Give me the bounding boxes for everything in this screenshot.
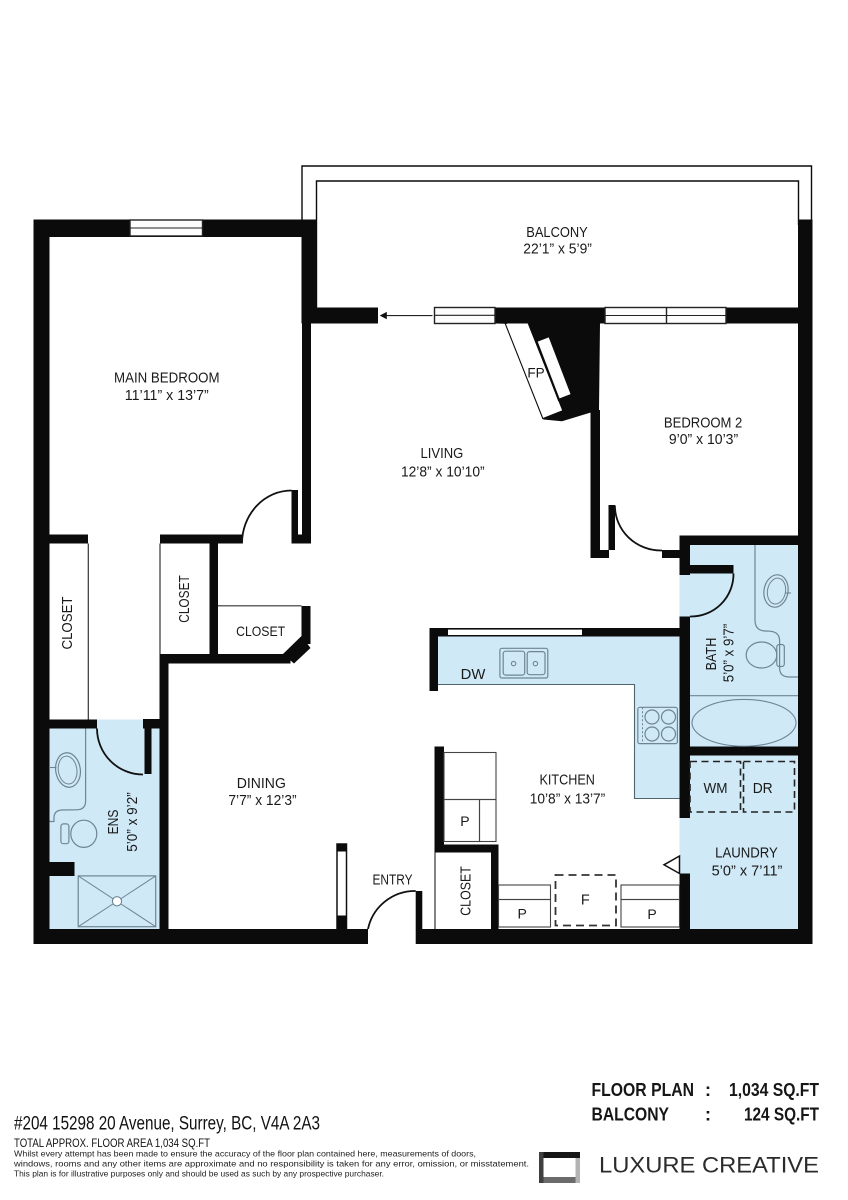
svg-text:7’7” x 12’3”: 7’7” x 12’3” [228,792,296,809]
svg-text:CLOSET: CLOSET [236,623,285,639]
svg-text:P: P [518,906,527,922]
svg-text:DW: DW [461,667,486,683]
svg-text:DR: DR [753,781,773,797]
svg-text:BALCONY: BALCONY [526,224,588,241]
svg-text:CLOSET: CLOSET [459,866,475,916]
svg-text:LAUNDRY: LAUNDRY [715,844,778,861]
svg-text:windows, rooms and any other i: windows, rooms and any other items are a… [13,1159,529,1169]
svg-text:ENTRY: ENTRY [373,872,413,889]
svg-text:MAIN BEDROOM: MAIN BEDROOM [114,370,220,387]
svg-text:WM: WM [704,781,728,797]
svg-text:LUXURE CREATIVE: LUXURE CREATIVE [599,1153,819,1178]
svg-text:LIVING: LIVING [421,445,464,462]
svg-text:P: P [647,906,656,922]
svg-text:5’0” x 7’11”: 5’0” x 7’11” [712,863,783,880]
svg-text:BEDROOM 2: BEDROOM 2 [664,414,742,431]
svg-text:KITCHEN: KITCHEN [540,772,595,789]
svg-text:12’8” x 10’10”: 12’8” x 10’10” [401,463,485,480]
svg-text:This plan is for illustrative: This plan is for illustrative purposes o… [14,1169,384,1179]
svg-text:BALCONY: BALCONY [592,1104,670,1125]
svg-text:CLOSET: CLOSET [177,575,193,623]
svg-text:124 SQ.FT: 124 SQ.FT [744,1104,820,1125]
svg-text:9’0” x 10’3”: 9’0” x 10’3” [669,431,738,448]
svg-text::: : [705,1104,711,1125]
svg-text:10’8” x 13’7”: 10’8” x 13’7” [530,791,606,808]
svg-text:BATH: BATH [704,638,720,671]
svg-text:5’0” x 9’7”: 5’0” x 9’7” [722,624,738,683]
svg-text:P: P [460,813,469,829]
svg-text::: : [705,1079,711,1100]
svg-text:FLOOR PLAN: FLOOR PLAN [592,1079,695,1100]
svg-text:1,034 SQ.FT: 1,034 SQ.FT [729,1079,820,1100]
svg-text:CLOSET: CLOSET [60,596,76,649]
svg-text:DINING: DINING [237,775,286,792]
svg-text:Whilst every attempt has been: Whilst every attempt has been made to en… [14,1149,476,1159]
svg-text:#204 15298 20 Avenue, Surrey,: #204 15298 20 Avenue, Surrey, BC, V4A 2A… [14,1114,320,1135]
svg-text:F: F [581,893,590,909]
svg-text:5’0” x 9’2”: 5’0” x 9’2” [125,792,141,852]
svg-text:FP: FP [527,366,544,381]
svg-text:ENS: ENS [106,810,122,835]
svg-text:22’1” x 5’9”: 22’1” x 5’9” [523,241,592,258]
svg-text:11’11” x 13’7”: 11’11” x 13’7” [125,387,209,404]
